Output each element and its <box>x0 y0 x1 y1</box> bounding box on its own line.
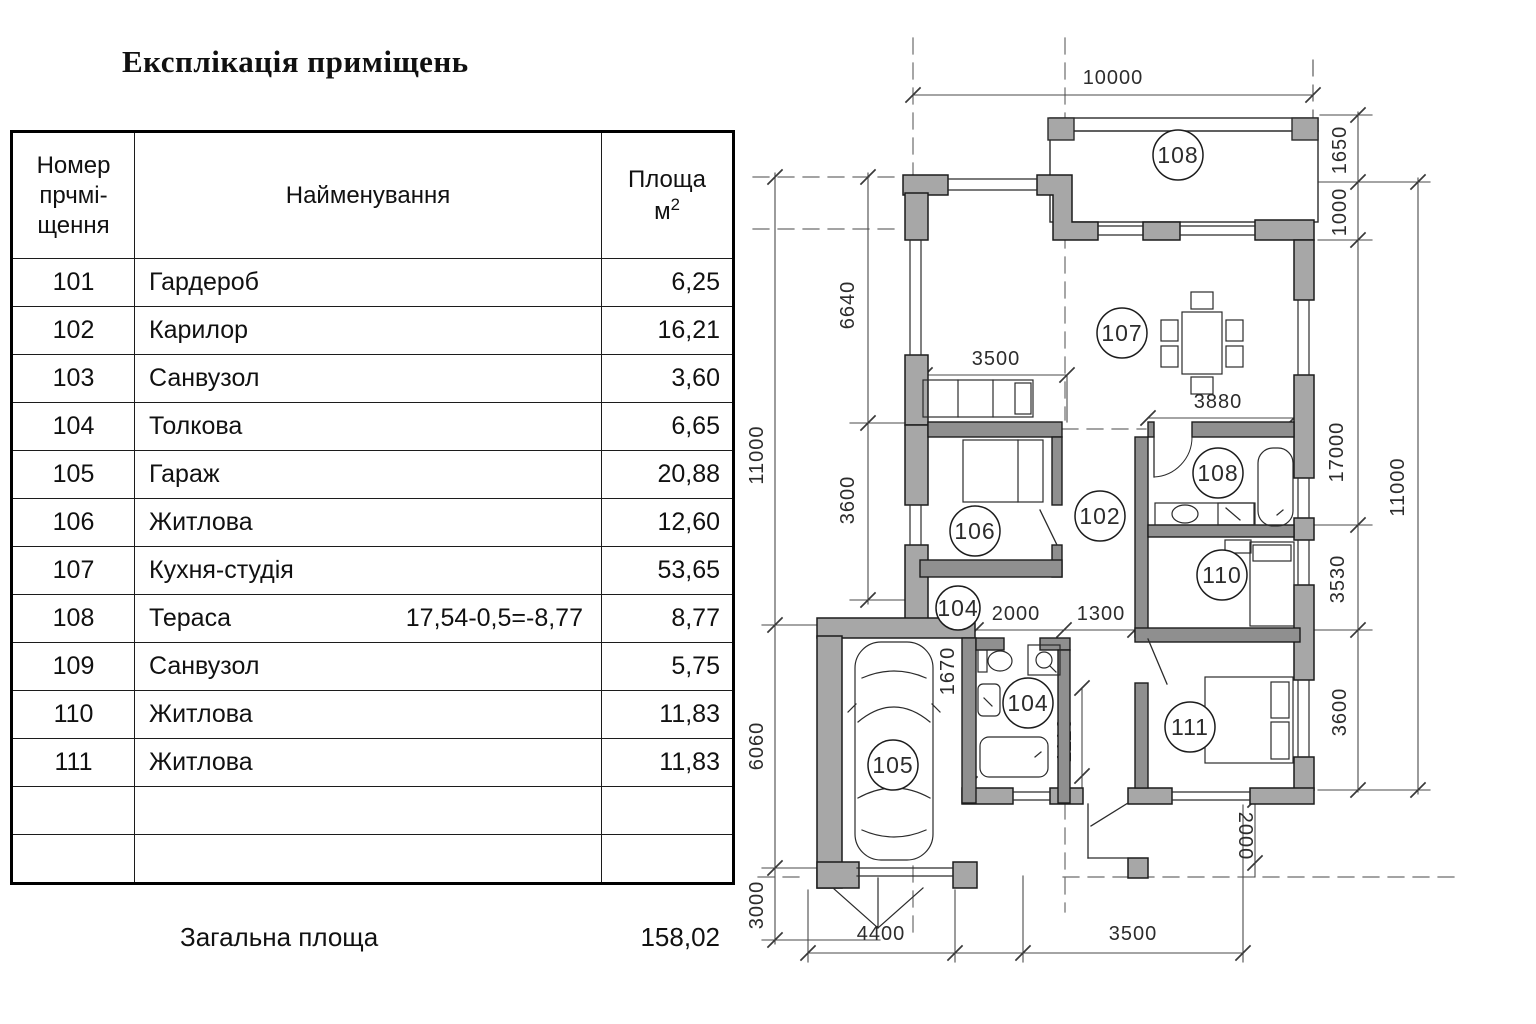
dim-right-11000: 11000 <box>1387 457 1409 516</box>
svg-text:104: 104 <box>1007 690 1048 716</box>
svg-text:102: 102 <box>1079 503 1120 529</box>
svg-text:106: 106 <box>954 518 995 544</box>
dim-right-1000: 1000 <box>1329 188 1351 237</box>
svg-text:110: 110 <box>1202 562 1242 588</box>
drawing-sheet: Експлікація приміщень Номер прчмі- щення… <box>0 0 1536 1024</box>
room-circle-garage: 105 <box>868 740 918 790</box>
dim-left-3000: 3000 <box>746 881 768 930</box>
dim-left-3600: 3600 <box>837 476 859 525</box>
room-circle-corridor: 102 <box>1075 491 1125 541</box>
dim-top-10000: 10000 <box>1083 67 1144 89</box>
dim-right-1650: 1650 <box>1329 126 1351 175</box>
svg-text:105: 105 <box>872 752 913 778</box>
room-circle-kitchen: 107 <box>1097 308 1147 358</box>
room-circle-110: 110 <box>1197 550 1247 600</box>
room-circle-bath-104: 104 <box>1003 678 1053 728</box>
dim-hall-1300: 1300 <box>1077 603 1126 625</box>
dim-sofa-3500: 3500 <box>972 348 1021 370</box>
dim-left-11000: 11000 <box>746 425 768 484</box>
dim-porch-2000: 2000 <box>1234 812 1256 861</box>
svg-text:108: 108 <box>1157 142 1198 168</box>
room-circle-bath-right: 108 <box>1193 448 1243 498</box>
dim-right-17000: 17000 <box>1326 422 1348 483</box>
dim-bottom-4400: 4400 <box>857 923 906 945</box>
room-circle-terrace: 108 <box>1153 130 1203 180</box>
dim-bottom-3500: 3500 <box>1109 923 1158 945</box>
room-circle-111: 111 <box>1165 702 1215 752</box>
room-circle-hall-104: 104 <box>936 586 980 630</box>
room-circle-106: 106 <box>950 506 1000 556</box>
dim-right-3600: 3600 <box>1329 688 1351 737</box>
sofa <box>923 380 1033 417</box>
bed-106 <box>963 440 1043 502</box>
dim-garage-1670: 1670 <box>937 647 959 696</box>
bed-111 <box>1205 677 1293 763</box>
svg-text:107: 107 <box>1101 320 1142 346</box>
svg-text:111: 111 <box>1171 714 1209 740</box>
dim-left-6640: 6640 <box>837 281 859 330</box>
axis-lines <box>753 38 1462 940</box>
dim-left-6060: 6060 <box>746 722 768 771</box>
svg-text:108: 108 <box>1197 460 1238 486</box>
dining-table <box>1161 292 1243 394</box>
floor-plan: 10000 1650 1000 17000 3530 3600 11000 11… <box>0 0 1536 1024</box>
dim-hall-2000: 2000 <box>992 603 1041 625</box>
svg-text:104: 104 <box>937 595 978 621</box>
dim-right-3530: 3530 <box>1327 555 1349 604</box>
